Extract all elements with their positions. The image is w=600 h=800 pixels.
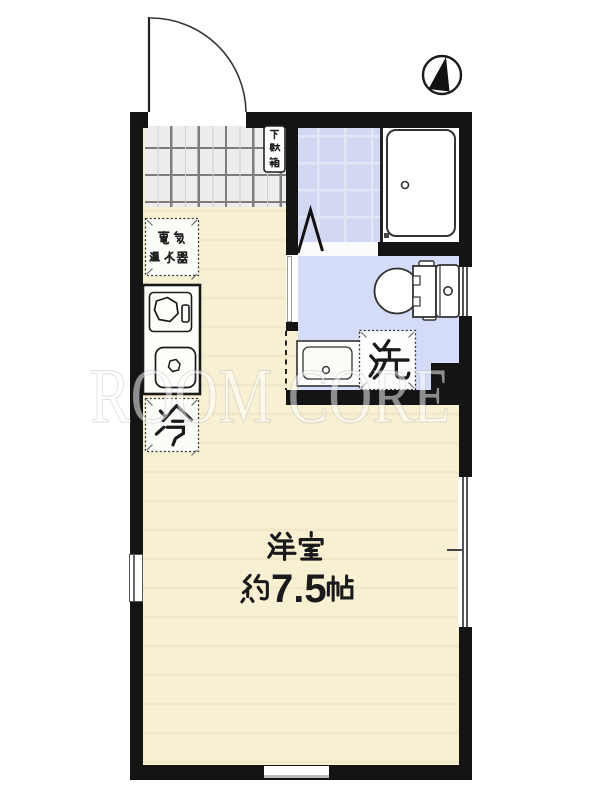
svg-text:7.5: 7.5 [271,567,327,611]
